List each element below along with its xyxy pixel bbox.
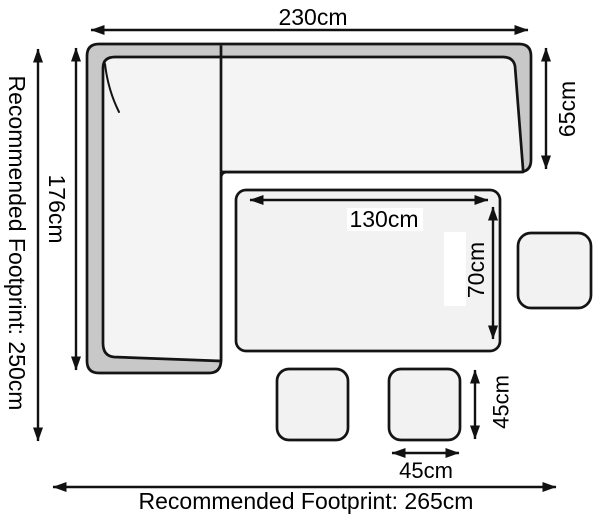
stool-side xyxy=(518,233,591,308)
table-length-label: 130cm xyxy=(349,206,418,232)
stool-bottom-right xyxy=(389,369,460,440)
footprint-left-label: Recommended Footprint: 250cm xyxy=(4,76,30,411)
sofa-left-depth-label: 176cm xyxy=(44,174,70,243)
footprint-bottom-label: Recommended Footprint: 265cm xyxy=(139,488,474,514)
diagram-svg: 230cm Recommended Footprint: 250cm 176cm… xyxy=(0,0,600,524)
sofa-width-label: 230cm xyxy=(278,4,347,30)
stool-depth-label: 45cm xyxy=(489,375,514,429)
sofa-right-depth-label: 65cm xyxy=(554,81,580,137)
footprint-diagram: 230cm Recommended Footprint: 250cm 176cm… xyxy=(0,0,600,524)
stool-bottom-left xyxy=(277,369,348,440)
table-depth-label: 70cm xyxy=(463,242,489,298)
stool-width-label: 45cm xyxy=(399,458,453,483)
